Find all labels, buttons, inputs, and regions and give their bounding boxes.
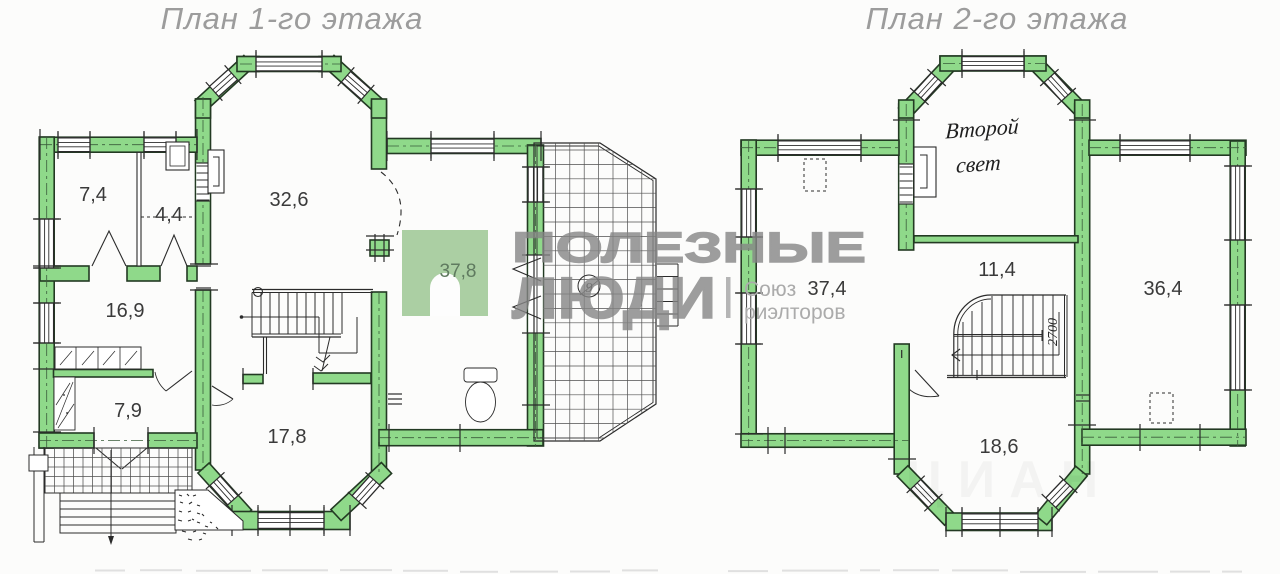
svg-text:4,4: 4,4 (155, 204, 183, 226)
svg-text:План 1-го этажа: План 1-го этажа (161, 1, 424, 36)
svg-text:ПОЛЕЗНЫЕ: ПОЛЕЗНЫЕ (512, 224, 866, 272)
svg-text:Второй: Второй (945, 113, 1019, 143)
svg-text:16,9: 16,9 (106, 300, 145, 322)
svg-text:2700: 2700 (1046, 318, 1061, 346)
svg-text:Союз: Союз (744, 278, 796, 301)
svg-text:План 2-го этажа: План 2-го этажа (866, 1, 1129, 36)
svg-text:риэлторов: риэлторов (744, 301, 846, 324)
svg-text:7,4: 7,4 (79, 184, 107, 206)
svg-text:37,4: 37,4 (808, 278, 847, 300)
svg-text:37,8: 37,8 (440, 261, 477, 282)
svg-text:32,6: 32,6 (270, 189, 309, 211)
svg-text:17,8: 17,8 (268, 426, 307, 448)
svg-text:ЛЮДИ: ЛЮДИ (512, 266, 716, 331)
svg-text:ЦИАН: ЦИАН (906, 451, 1112, 509)
svg-text:7,9: 7,9 (114, 400, 142, 422)
svg-text:11,4: 11,4 (978, 259, 1015, 281)
svg-text:свет: свет (956, 150, 1001, 178)
svg-text:36,4: 36,4 (1144, 278, 1183, 300)
